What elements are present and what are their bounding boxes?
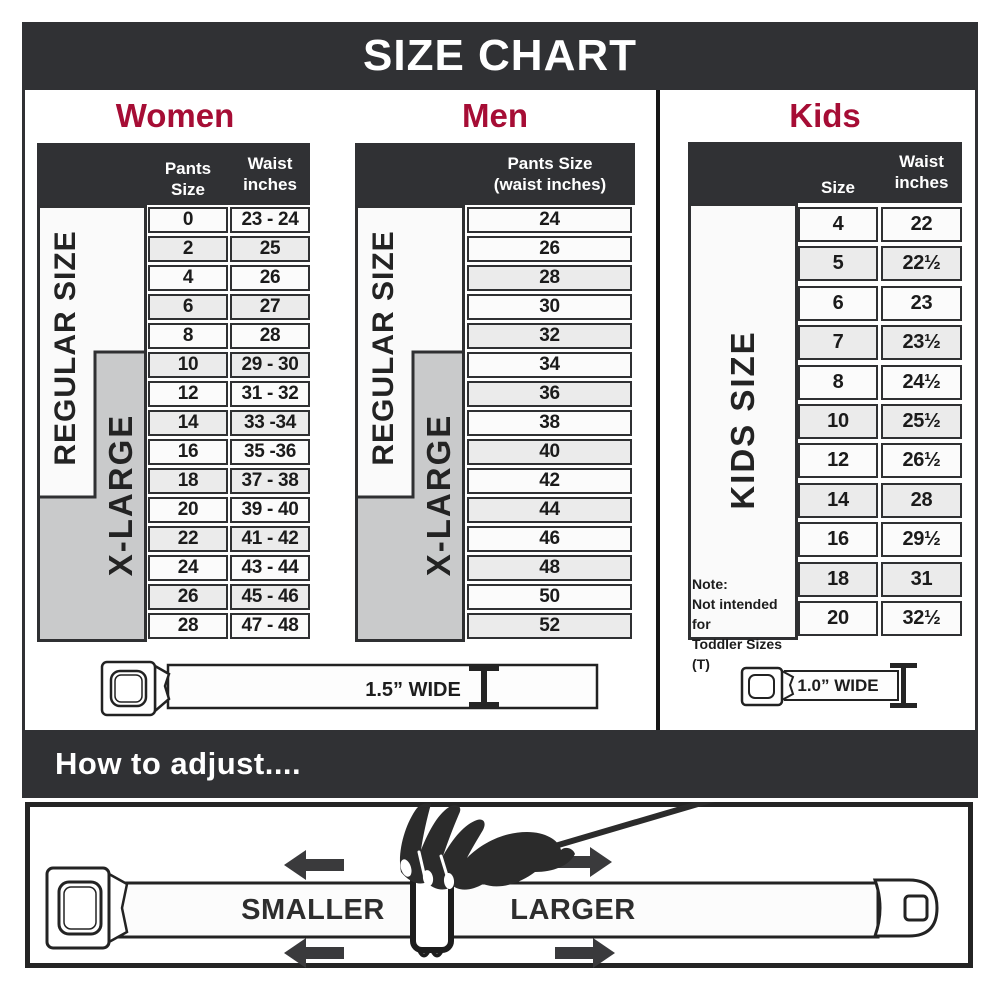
- women-regular-label: REGULAR SIZE: [49, 230, 83, 465]
- larger-label: LARGER: [493, 894, 653, 927]
- table-row: 50: [467, 584, 632, 610]
- pants-size-cell: 30: [467, 294, 632, 320]
- waist-cell: 26½: [881, 443, 962, 478]
- size-cell: 18: [798, 562, 878, 597]
- pants-size-cell: 18: [148, 468, 228, 494]
- size-cell: 20: [798, 601, 878, 636]
- pants-size-cell: 10: [148, 352, 228, 378]
- pants-size-cell: 40: [467, 439, 632, 465]
- pants-size-cell: 48: [467, 555, 632, 581]
- men-xlarge-label: X-LARGE: [420, 414, 458, 577]
- table-row: 40: [467, 439, 632, 465]
- pants-size-cell: 12: [148, 381, 228, 407]
- table-row: 32: [467, 323, 632, 349]
- table-row: 26: [467, 236, 632, 262]
- table-row: 34: [467, 352, 632, 378]
- waist-cell: 45 - 46: [230, 584, 310, 610]
- women-col-size-header: Pants Size: [148, 174, 228, 200]
- waist-cell: 25: [230, 236, 310, 262]
- size-cell: 4: [798, 207, 878, 242]
- waist-cell: 24½: [881, 365, 962, 400]
- pants-size-cell: 4: [148, 265, 228, 291]
- pants-size-cell: 24: [148, 555, 228, 581]
- table-row: 28: [467, 265, 632, 291]
- waist-cell: 22: [881, 207, 962, 242]
- pants-size-cell: 8: [148, 323, 228, 349]
- table-row: 723½: [798, 325, 962, 360]
- pants-size-cell: 42: [467, 468, 632, 494]
- pants-size-cell: 46: [467, 526, 632, 552]
- pants-size-cell: 52: [467, 613, 632, 639]
- table-row: 426: [148, 265, 310, 291]
- table-row: 1025½: [798, 404, 962, 439]
- table-row: 1231 - 32: [148, 381, 310, 407]
- kids-belt-width-label: 1.0” WIDE: [778, 676, 898, 696]
- table-row: 2039 - 40: [148, 497, 310, 523]
- size-cell: 10: [798, 404, 878, 439]
- title-banner: SIZE CHART: [22, 22, 978, 90]
- table-row: 2032½: [798, 601, 962, 636]
- table-row: 623: [798, 286, 962, 321]
- pants-size-cell: 28: [467, 265, 632, 291]
- size-cell: 8: [798, 365, 878, 400]
- men-col-header: Pants Size (waist inches): [467, 153, 633, 195]
- table-row: 2443 - 44: [148, 555, 310, 581]
- size-cell: 12: [798, 443, 878, 478]
- table-row: 225: [148, 236, 310, 262]
- table-row: 38: [467, 410, 632, 436]
- seatbelt-buckle-icon: [102, 662, 169, 715]
- men-regular-label: REGULAR SIZE: [367, 230, 401, 465]
- table-row: 1831: [798, 562, 962, 597]
- waist-cell: 32½: [881, 601, 962, 636]
- pants-size-cell: 24: [467, 207, 632, 233]
- how-to-adjust-band: How to adjust....: [22, 730, 978, 798]
- table-row: 2847 - 48: [148, 613, 310, 639]
- waist-cell: 27: [230, 294, 310, 320]
- pants-size-cell: 26: [148, 584, 228, 610]
- table-row: 1635 -36: [148, 439, 310, 465]
- men-heading: Men: [395, 97, 595, 135]
- waist-cell: 31: [881, 562, 962, 597]
- page-title: SIZE CHART: [363, 31, 637, 81]
- table-row: 1428: [798, 483, 962, 518]
- table-row: 023 - 24: [148, 207, 310, 233]
- pants-size-cell: 32: [467, 323, 632, 349]
- pants-size-cell: 50: [467, 584, 632, 610]
- size-cell: 5: [798, 246, 878, 281]
- table-row: 1226½: [798, 443, 962, 478]
- belt-tip-icon: [875, 880, 937, 936]
- waist-cell: 43 - 44: [230, 555, 310, 581]
- pants-size-cell: 26: [467, 236, 632, 262]
- waist-cell: 37 - 38: [230, 468, 310, 494]
- size-chart-page: SIZE CHART Women Men Kids Pants Size Wai…: [0, 0, 1000, 1000]
- pants-size-cell: 36: [467, 381, 632, 407]
- waist-cell: 28: [881, 483, 962, 518]
- women-col-waist-header: Waist inches: [230, 153, 310, 195]
- pants-size-cell: 22: [148, 526, 228, 552]
- size-cell: 14: [798, 483, 878, 518]
- women-heading: Women: [75, 97, 275, 135]
- women-xlarge-label: X-LARGE: [102, 414, 140, 577]
- how-to-adjust-heading: How to adjust....: [55, 746, 301, 782]
- table-row: 44: [467, 497, 632, 523]
- table-row: 52: [467, 613, 632, 639]
- smaller-label: SMALLER: [233, 894, 393, 927]
- size-cell: 6: [798, 286, 878, 321]
- size-cell: 16: [798, 522, 878, 557]
- table-row: 1837 - 38: [148, 468, 310, 494]
- waist-cell: 29½: [881, 522, 962, 557]
- waist-cell: 35 -36: [230, 439, 310, 465]
- waist-cell: 23 - 24: [230, 207, 310, 233]
- pants-size-cell: 38: [467, 410, 632, 436]
- hand-icon: [398, 803, 575, 889]
- table-row: 36: [467, 381, 632, 407]
- kids-col-size-header: Size: [798, 172, 878, 198]
- table-row: 24: [467, 207, 632, 233]
- pants-size-cell: 44: [467, 497, 632, 523]
- waist-cell: 22½: [881, 246, 962, 281]
- table-row: 42: [467, 468, 632, 494]
- belt-tail-line: [555, 802, 725, 846]
- table-row: 30: [467, 294, 632, 320]
- kids-heading: Kids: [725, 97, 925, 135]
- table-row: 1433 -34: [148, 410, 310, 436]
- waist-cell: 26: [230, 265, 310, 291]
- waist-cell: 31 - 32: [230, 381, 310, 407]
- kids-size-label: KIDS SIZE: [724, 330, 762, 509]
- kids-col-waist-header: Waist inches: [881, 151, 962, 193]
- pants-size-cell: 20: [148, 497, 228, 523]
- table-row: 824½: [798, 365, 962, 400]
- waist-cell: 29 - 30: [230, 352, 310, 378]
- table-row: 627: [148, 294, 310, 320]
- seatbelt-buckle-icon: [47, 868, 127, 948]
- size-cell: 7: [798, 325, 878, 360]
- pants-size-cell: 14: [148, 410, 228, 436]
- table-row: 1029 - 30: [148, 352, 310, 378]
- pants-size-cell: 0: [148, 207, 228, 233]
- pants-size-cell: 16: [148, 439, 228, 465]
- waist-cell: 47 - 48: [230, 613, 310, 639]
- waist-cell: 41 - 42: [230, 526, 310, 552]
- table-row: 48: [467, 555, 632, 581]
- table-row: 2645 - 46: [148, 584, 310, 610]
- table-row: 522½: [798, 246, 962, 281]
- table-row: 828: [148, 323, 310, 349]
- pants-size-cell: 28: [148, 613, 228, 639]
- table-row: 46: [467, 526, 632, 552]
- waist-cell: 23: [881, 286, 962, 321]
- waist-cell: 23½: [881, 325, 962, 360]
- waist-cell: 28: [230, 323, 310, 349]
- table-row: 422: [798, 207, 962, 242]
- waist-cell: 39 - 40: [230, 497, 310, 523]
- pants-size-cell: 34: [467, 352, 632, 378]
- adult-belt-width-label: 1.5” WIDE: [333, 679, 493, 702]
- pants-size-cell: 2: [148, 236, 228, 262]
- pants-size-cell: 6: [148, 294, 228, 320]
- table-row: 1629½: [798, 522, 962, 557]
- panel-divider: [656, 90, 660, 730]
- table-row: 2241 - 42: [148, 526, 310, 552]
- waist-cell: 33 -34: [230, 410, 310, 436]
- waist-cell: 25½: [881, 404, 962, 439]
- adjust-belt-illustration: [25, 802, 973, 968]
